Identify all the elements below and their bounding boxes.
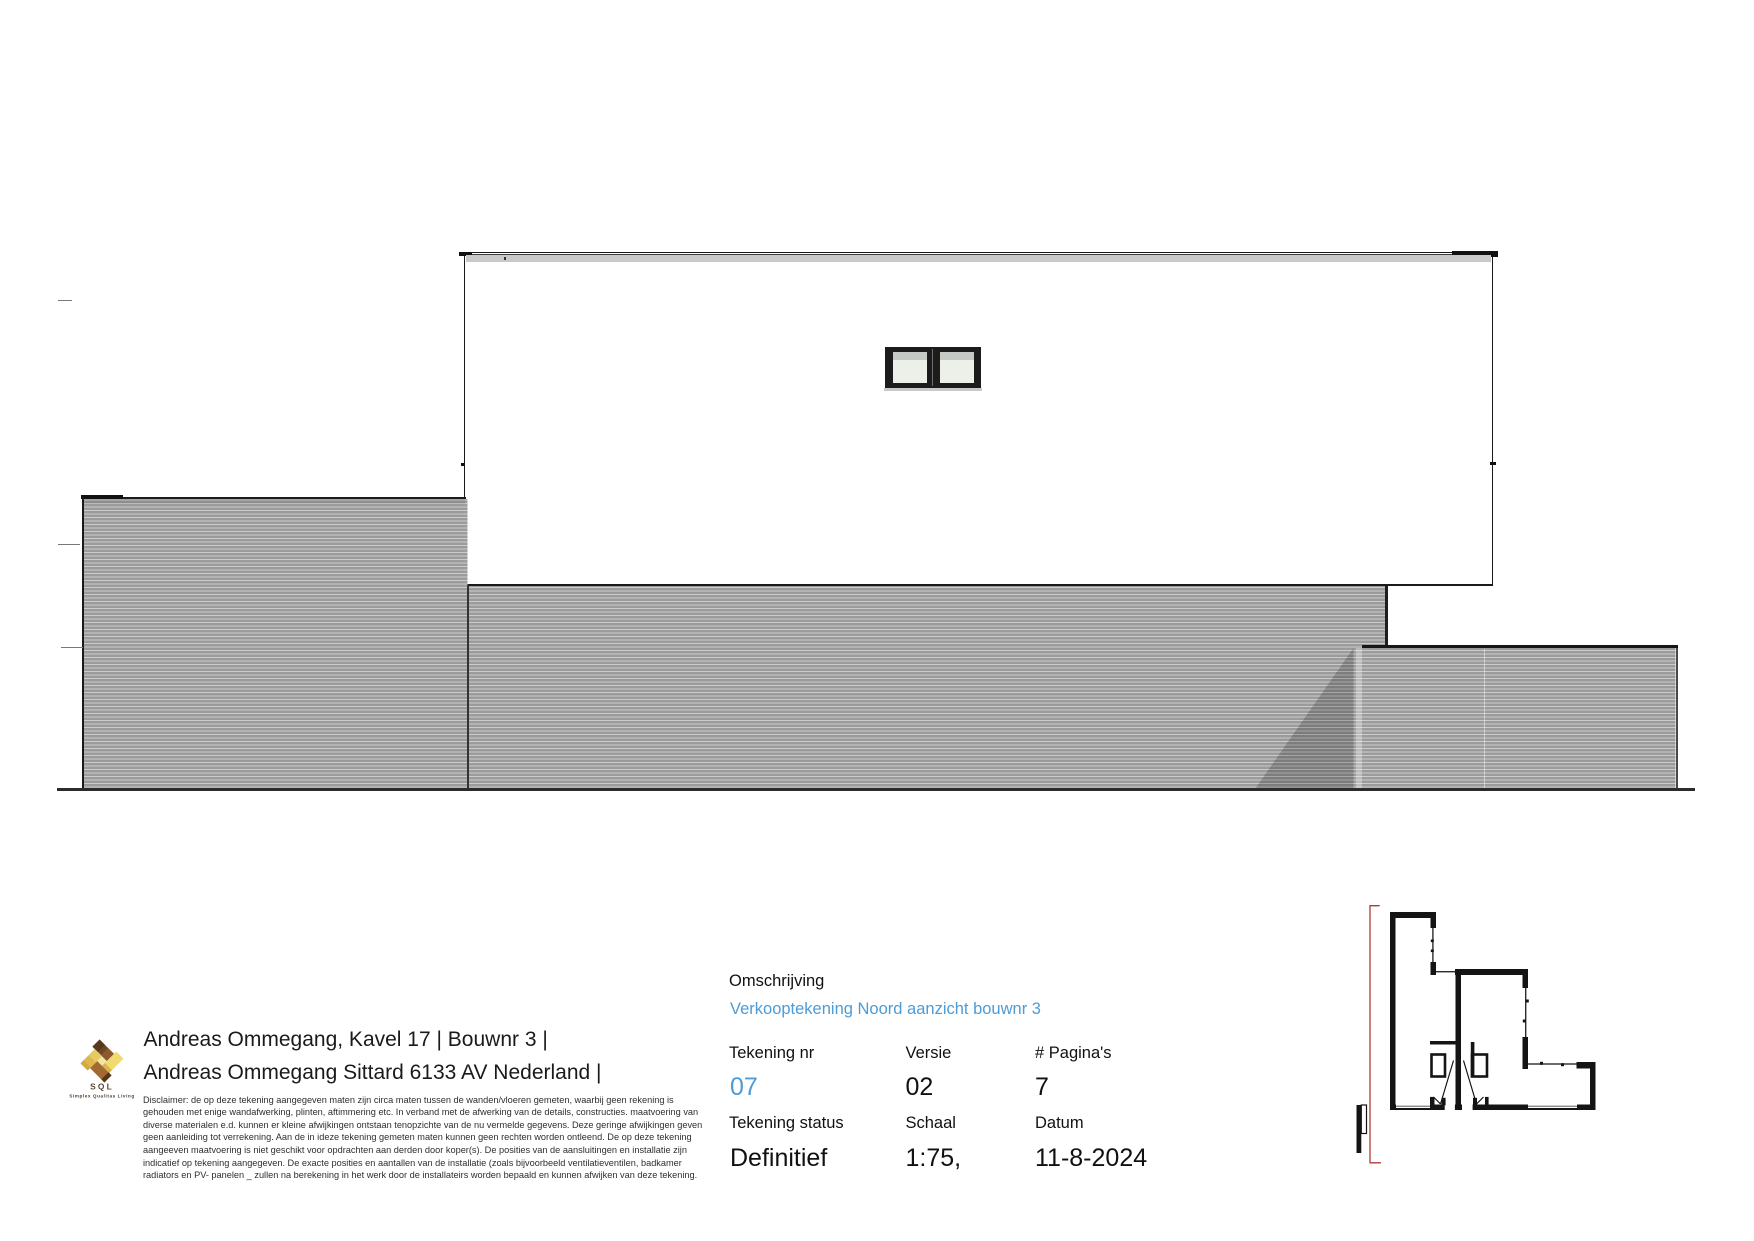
svg-text:SQL: SQL (90, 1082, 114, 1092)
svg-text:Simplex Qualitas Living: Simplex Qualitas Living (69, 1094, 135, 1099)
